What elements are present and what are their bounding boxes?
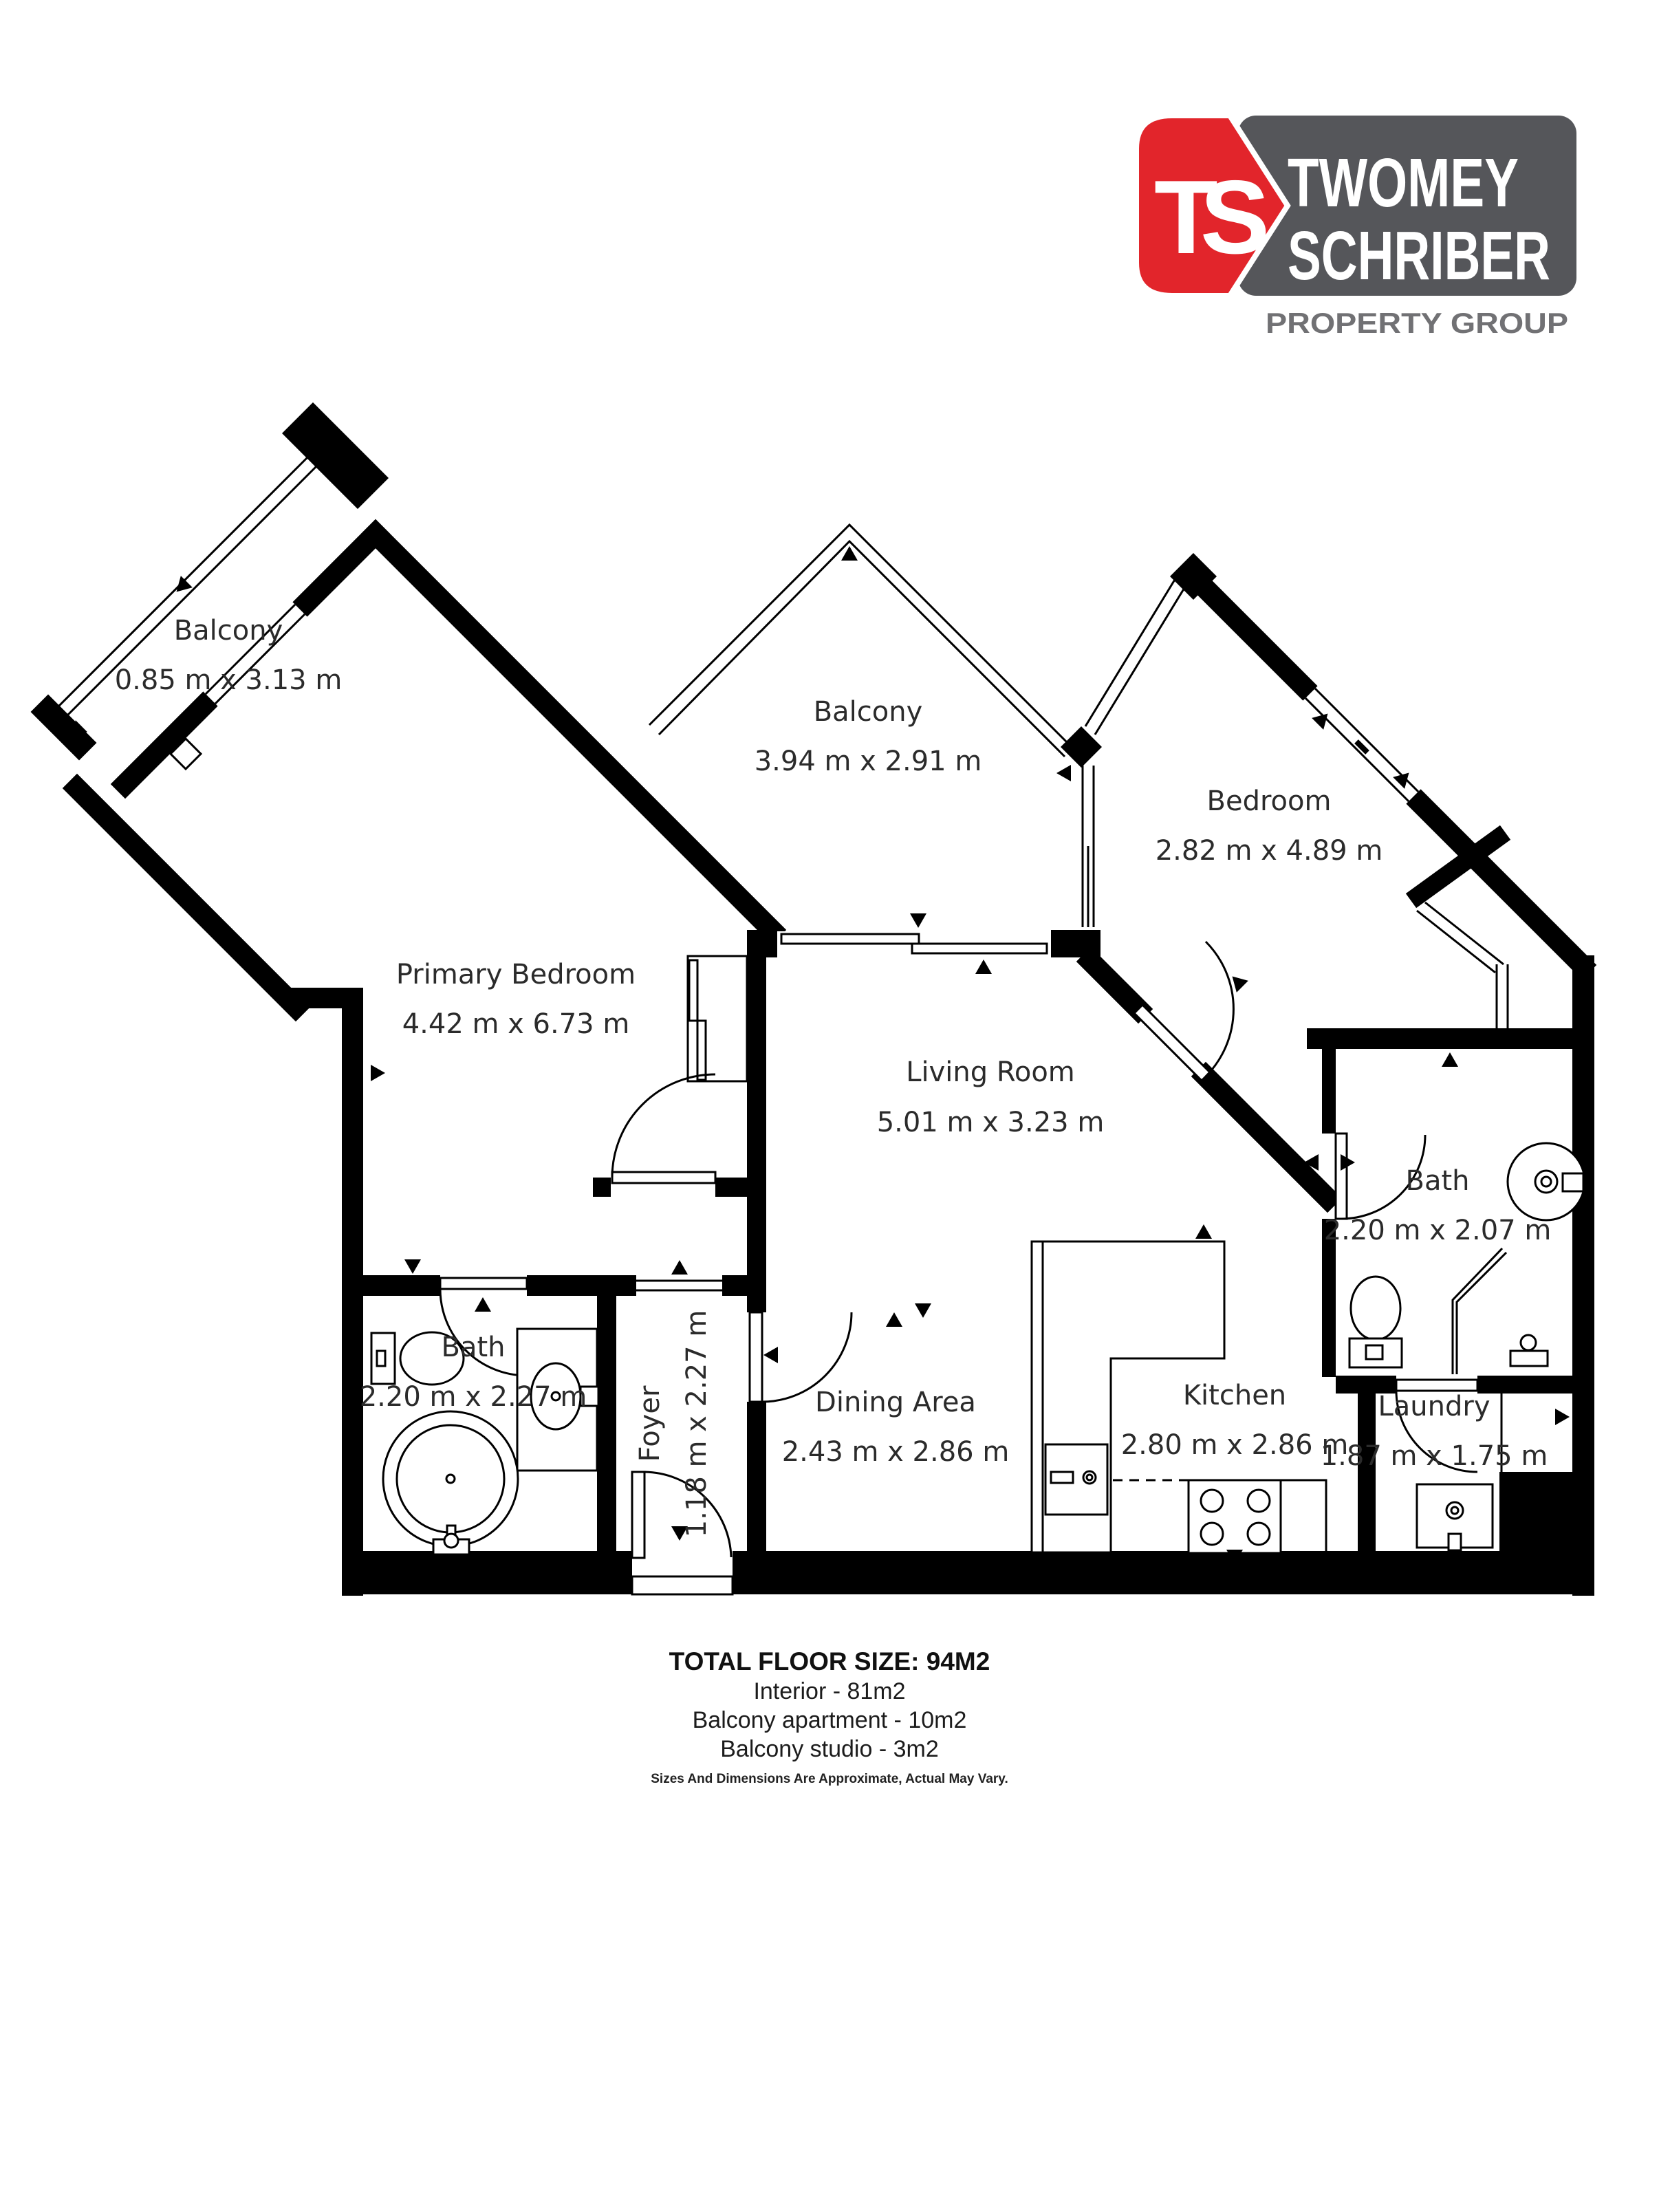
room-dims-kitchen: 2.80 m x 2.86 m (1121, 1429, 1349, 1461)
entry-door (632, 1472, 644, 1558)
kitchen-cabinet (1281, 1480, 1326, 1553)
logo-tagline: PROPERTY GROUP (1266, 307, 1568, 339)
room-dims-balcony-studio: 0.85 m x 3.13 m (115, 664, 343, 696)
room-dims-balcony-apartment: 3.94 m x 2.91 m (755, 746, 982, 777)
room-label-bath-right: Bath (1406, 1165, 1470, 1197)
room-dims-living-room: 5.01 m x 3.23 m (877, 1107, 1105, 1138)
room-label-balcony-apartment: Balcony (814, 696, 923, 728)
logo-monogram: TS (1154, 159, 1266, 276)
bedroom-door (1134, 1005, 1210, 1081)
summary-balcony-studio: Balcony studio - 3m2 (720, 1736, 939, 1762)
room-dims-bedroom: 2.82 m x 4.89 m (1156, 835, 1383, 867)
room-dims-dining-area: 2.43 m x 2.86 m (782, 1436, 1010, 1468)
floor-size-summary: TOTAL FLOOR SIZE: 94M2 Interior - 81m2 B… (651, 1647, 1008, 1786)
room-label-living-room: Living Room (906, 1056, 1075, 1088)
bath-left-door (440, 1278, 527, 1289)
floorplan-page: TS TWOMEY SCHRIBER PROPERTY GROUP (0, 0, 1659, 2212)
room-label-balcony-studio: Balcony (174, 615, 283, 647)
room-labels: Balcony 0.85 m x 3.13 m Primary Bedroom … (115, 615, 1552, 1537)
primary-bedroom-door (612, 1172, 715, 1183)
dining-door (750, 1312, 762, 1402)
room-label-kitchen: Kitchen (1183, 1380, 1286, 1411)
summary-balcony-apartment: Balcony apartment - 10m2 (693, 1707, 967, 1733)
room-dims-bath-left: 2.20 m x 2.27 m (360, 1381, 587, 1413)
logo-name-line2: SCHRIBER (1288, 217, 1550, 294)
summary-footnote: Sizes And Dimensions Are Approximate, Ac… (651, 1772, 1008, 1786)
room-dims-laundry: 1.87 m x 1.75 m (1321, 1440, 1548, 1472)
sink-right-bath (1508, 1143, 1585, 1220)
room-label-dining-area: Dining Area (815, 1387, 976, 1418)
room-dims-bath-right: 2.20 m x 2.07 m (1324, 1215, 1552, 1246)
summary-title: TOTAL FLOOR SIZE: 94M2 (669, 1647, 990, 1676)
bathtub (383, 1411, 518, 1554)
room-label-laundry: Laundry (1378, 1391, 1490, 1422)
wardrobe (688, 956, 747, 1081)
bath-right-door (1336, 1134, 1347, 1219)
room-label-foyer: Foyer (634, 1385, 666, 1462)
room-dims-foyer: 1.18 m x 2.27 m (681, 1310, 713, 1538)
room-dims-primary-bedroom: 4.42 m x 6.73 m (402, 1008, 630, 1040)
logo-name-line1: TWOMEY (1288, 144, 1519, 221)
walls-diagonal (48, 402, 1582, 1198)
room-label-primary-bedroom: Primary Bedroom (396, 959, 636, 990)
stove (1189, 1480, 1281, 1553)
laundry-door (1396, 1380, 1477, 1391)
washing-machine (1417, 1484, 1493, 1550)
summary-interior: Interior - 81m2 (753, 1678, 905, 1704)
shower (1453, 1248, 1548, 1374)
room-label-bedroom: Bedroom (1207, 785, 1332, 817)
brand-logo: TS TWOMEY SCHRIBER PROPERTY GROUP (1136, 116, 1576, 339)
floor-plan-canvas: TS TWOMEY SCHRIBER PROPERTY GROUP (0, 0, 1659, 2212)
toilet-right (1349, 1277, 1402, 1367)
room-label-bath-left: Bath (442, 1332, 506, 1363)
